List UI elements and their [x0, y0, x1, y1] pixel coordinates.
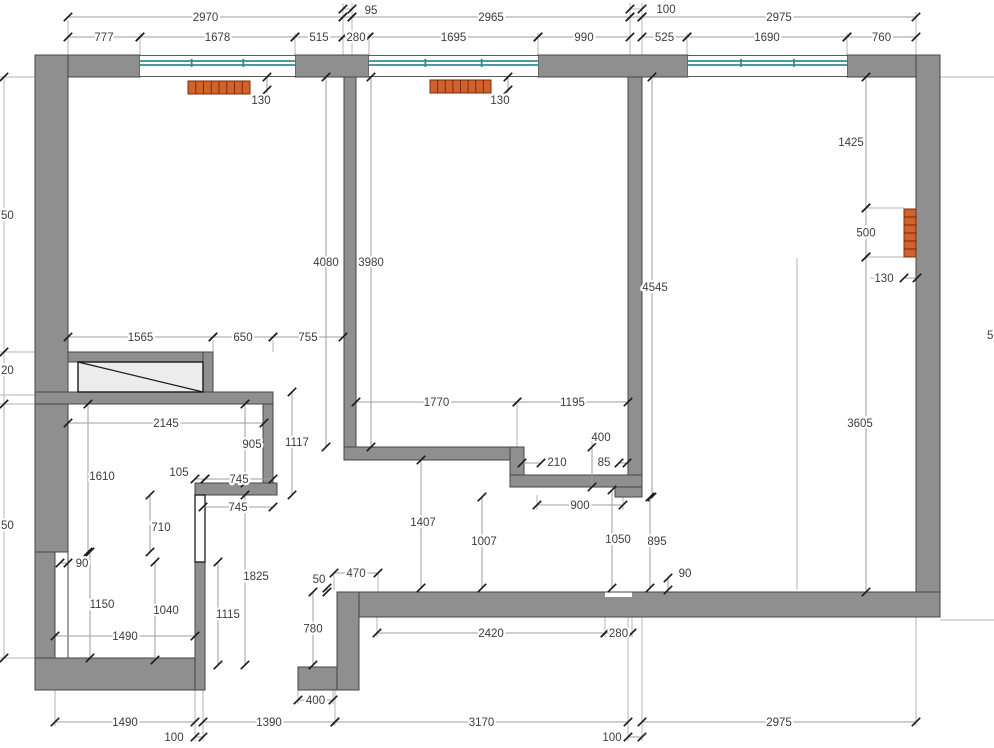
dimension-label: 2145	[153, 418, 179, 430]
dimension-label: 1610	[89, 471, 115, 483]
floor-plan-page: 2970296529759510077716785152801695990525…	[0, 0, 994, 748]
window-opening	[369, 55, 538, 77]
dimension-label: 1195	[560, 397, 585, 409]
radiator	[188, 81, 250, 94]
wall-segment	[510, 475, 642, 487]
dimension-label: 515	[309, 32, 328, 44]
dimension-label: 130	[490, 95, 509, 107]
dimension-label: 90	[679, 568, 692, 580]
dimension-label-clipped: 5	[987, 330, 993, 342]
radiator	[904, 209, 916, 257]
dimension-label-clipped: 20	[1, 365, 14, 377]
wall-segment	[35, 392, 273, 404]
dimension-label: 2975	[766, 12, 792, 24]
dimension-label: 745	[228, 502, 247, 514]
wall-niche	[55, 552, 68, 658]
window	[688, 55, 847, 77]
dimension-label: 3980	[358, 257, 384, 269]
dimension-label: 500	[856, 228, 875, 240]
dimension-label: 85	[598, 457, 611, 469]
dimension-label: 1117	[285, 437, 309, 449]
dimension-label: 1115	[216, 609, 240, 621]
dimension-label: 95	[365, 5, 378, 17]
window-opening	[140, 55, 295, 77]
dimension-label: 755	[298, 332, 317, 344]
dimension-label: 400	[591, 432, 610, 444]
dimension-label: 100	[164, 732, 183, 744]
dimension-label: 280	[346, 32, 365, 44]
dimension-label: 1678	[205, 32, 231, 44]
dimension-label: 4545	[642, 282, 668, 294]
thin-partition	[195, 495, 205, 562]
wall-segment	[615, 487, 642, 497]
dimension-label: 470	[346, 568, 365, 580]
dimension-label: 900	[570, 500, 589, 512]
dimension-label: 777	[94, 32, 113, 44]
dimension-label: 1007	[471, 536, 497, 548]
dimension-label: 130	[874, 273, 893, 285]
wall-segment	[195, 562, 205, 690]
wall-segment	[35, 55, 68, 552]
floor-plan-canvas[interactable]: 2970296529759510077716785152801695990525…	[0, 0, 994, 748]
furniture-layer	[78, 362, 205, 562]
dimension-label: 50	[313, 574, 326, 586]
dimension-label: 780	[303, 624, 322, 636]
dimension-label: 1490	[112, 631, 138, 643]
dimension-label: 3170	[469, 717, 495, 729]
dimension-label: 1390	[256, 717, 282, 729]
dimension-label: 1050	[605, 534, 631, 546]
window	[369, 55, 538, 77]
dimension-label: 4080	[313, 257, 339, 269]
dimension-label: 525	[655, 32, 674, 44]
dimension-label: 710	[151, 522, 170, 534]
dimension-label: 210	[547, 457, 566, 469]
radiator	[430, 80, 491, 93]
dimension-label: 745	[229, 474, 248, 486]
wall-segment	[295, 55, 369, 77]
dimension-label: 2975	[766, 717, 792, 729]
dimension-label: 990	[574, 32, 593, 44]
wall-segment	[35, 658, 197, 690]
dimension-label: 130	[251, 95, 270, 107]
dimension-label: 1040	[153, 605, 179, 617]
dimension-label: 650	[233, 332, 252, 344]
wall-segment	[916, 55, 940, 617]
wall-segment	[344, 77, 356, 460]
dimension-label: 400	[306, 695, 325, 707]
dimension-label: 1695	[441, 32, 467, 44]
dimension-label: 1407	[410, 517, 436, 529]
wall-segment	[263, 404, 273, 483]
dimension-label-clipped: 50	[1, 210, 14, 222]
dimension-label-clipped: 50	[1, 520, 14, 532]
dimension-label: 1490	[112, 717, 138, 729]
radiators-layer	[188, 80, 916, 257]
dimension-label: 2965	[478, 12, 504, 24]
dimension-label: 1690	[754, 32, 780, 44]
dimension-label: 1425	[838, 137, 864, 149]
dimension-label: 1150	[90, 599, 115, 611]
dimension-label: 2970	[193, 12, 219, 24]
dimension-label: 905	[242, 439, 261, 451]
wall-segment	[628, 77, 642, 497]
dimension-label: 3605	[847, 418, 873, 430]
windows-layer	[140, 55, 847, 77]
dimension-label: 100	[602, 732, 621, 744]
wall-segment	[68, 352, 213, 362]
dimension-label: 105	[169, 467, 188, 479]
wall-segment	[538, 55, 688, 77]
dimension-label: 1825	[243, 571, 269, 583]
dimension-label: 280	[609, 628, 628, 640]
window-opening	[688, 55, 847, 77]
wall-notch	[605, 593, 632, 598]
dimension-label: 760	[872, 32, 891, 44]
wall-segment	[298, 667, 337, 690]
dimension-label: 895	[647, 536, 666, 548]
dimension-label: 1565	[128, 332, 154, 344]
dimension-label: 2420	[478, 628, 504, 640]
dimension-label: 1770	[424, 397, 450, 409]
window	[140, 55, 295, 77]
dimension-label: 90	[76, 558, 89, 570]
wall-segment	[337, 592, 359, 690]
wall-segment	[337, 592, 940, 617]
dimension-label: 100	[656, 4, 675, 16]
